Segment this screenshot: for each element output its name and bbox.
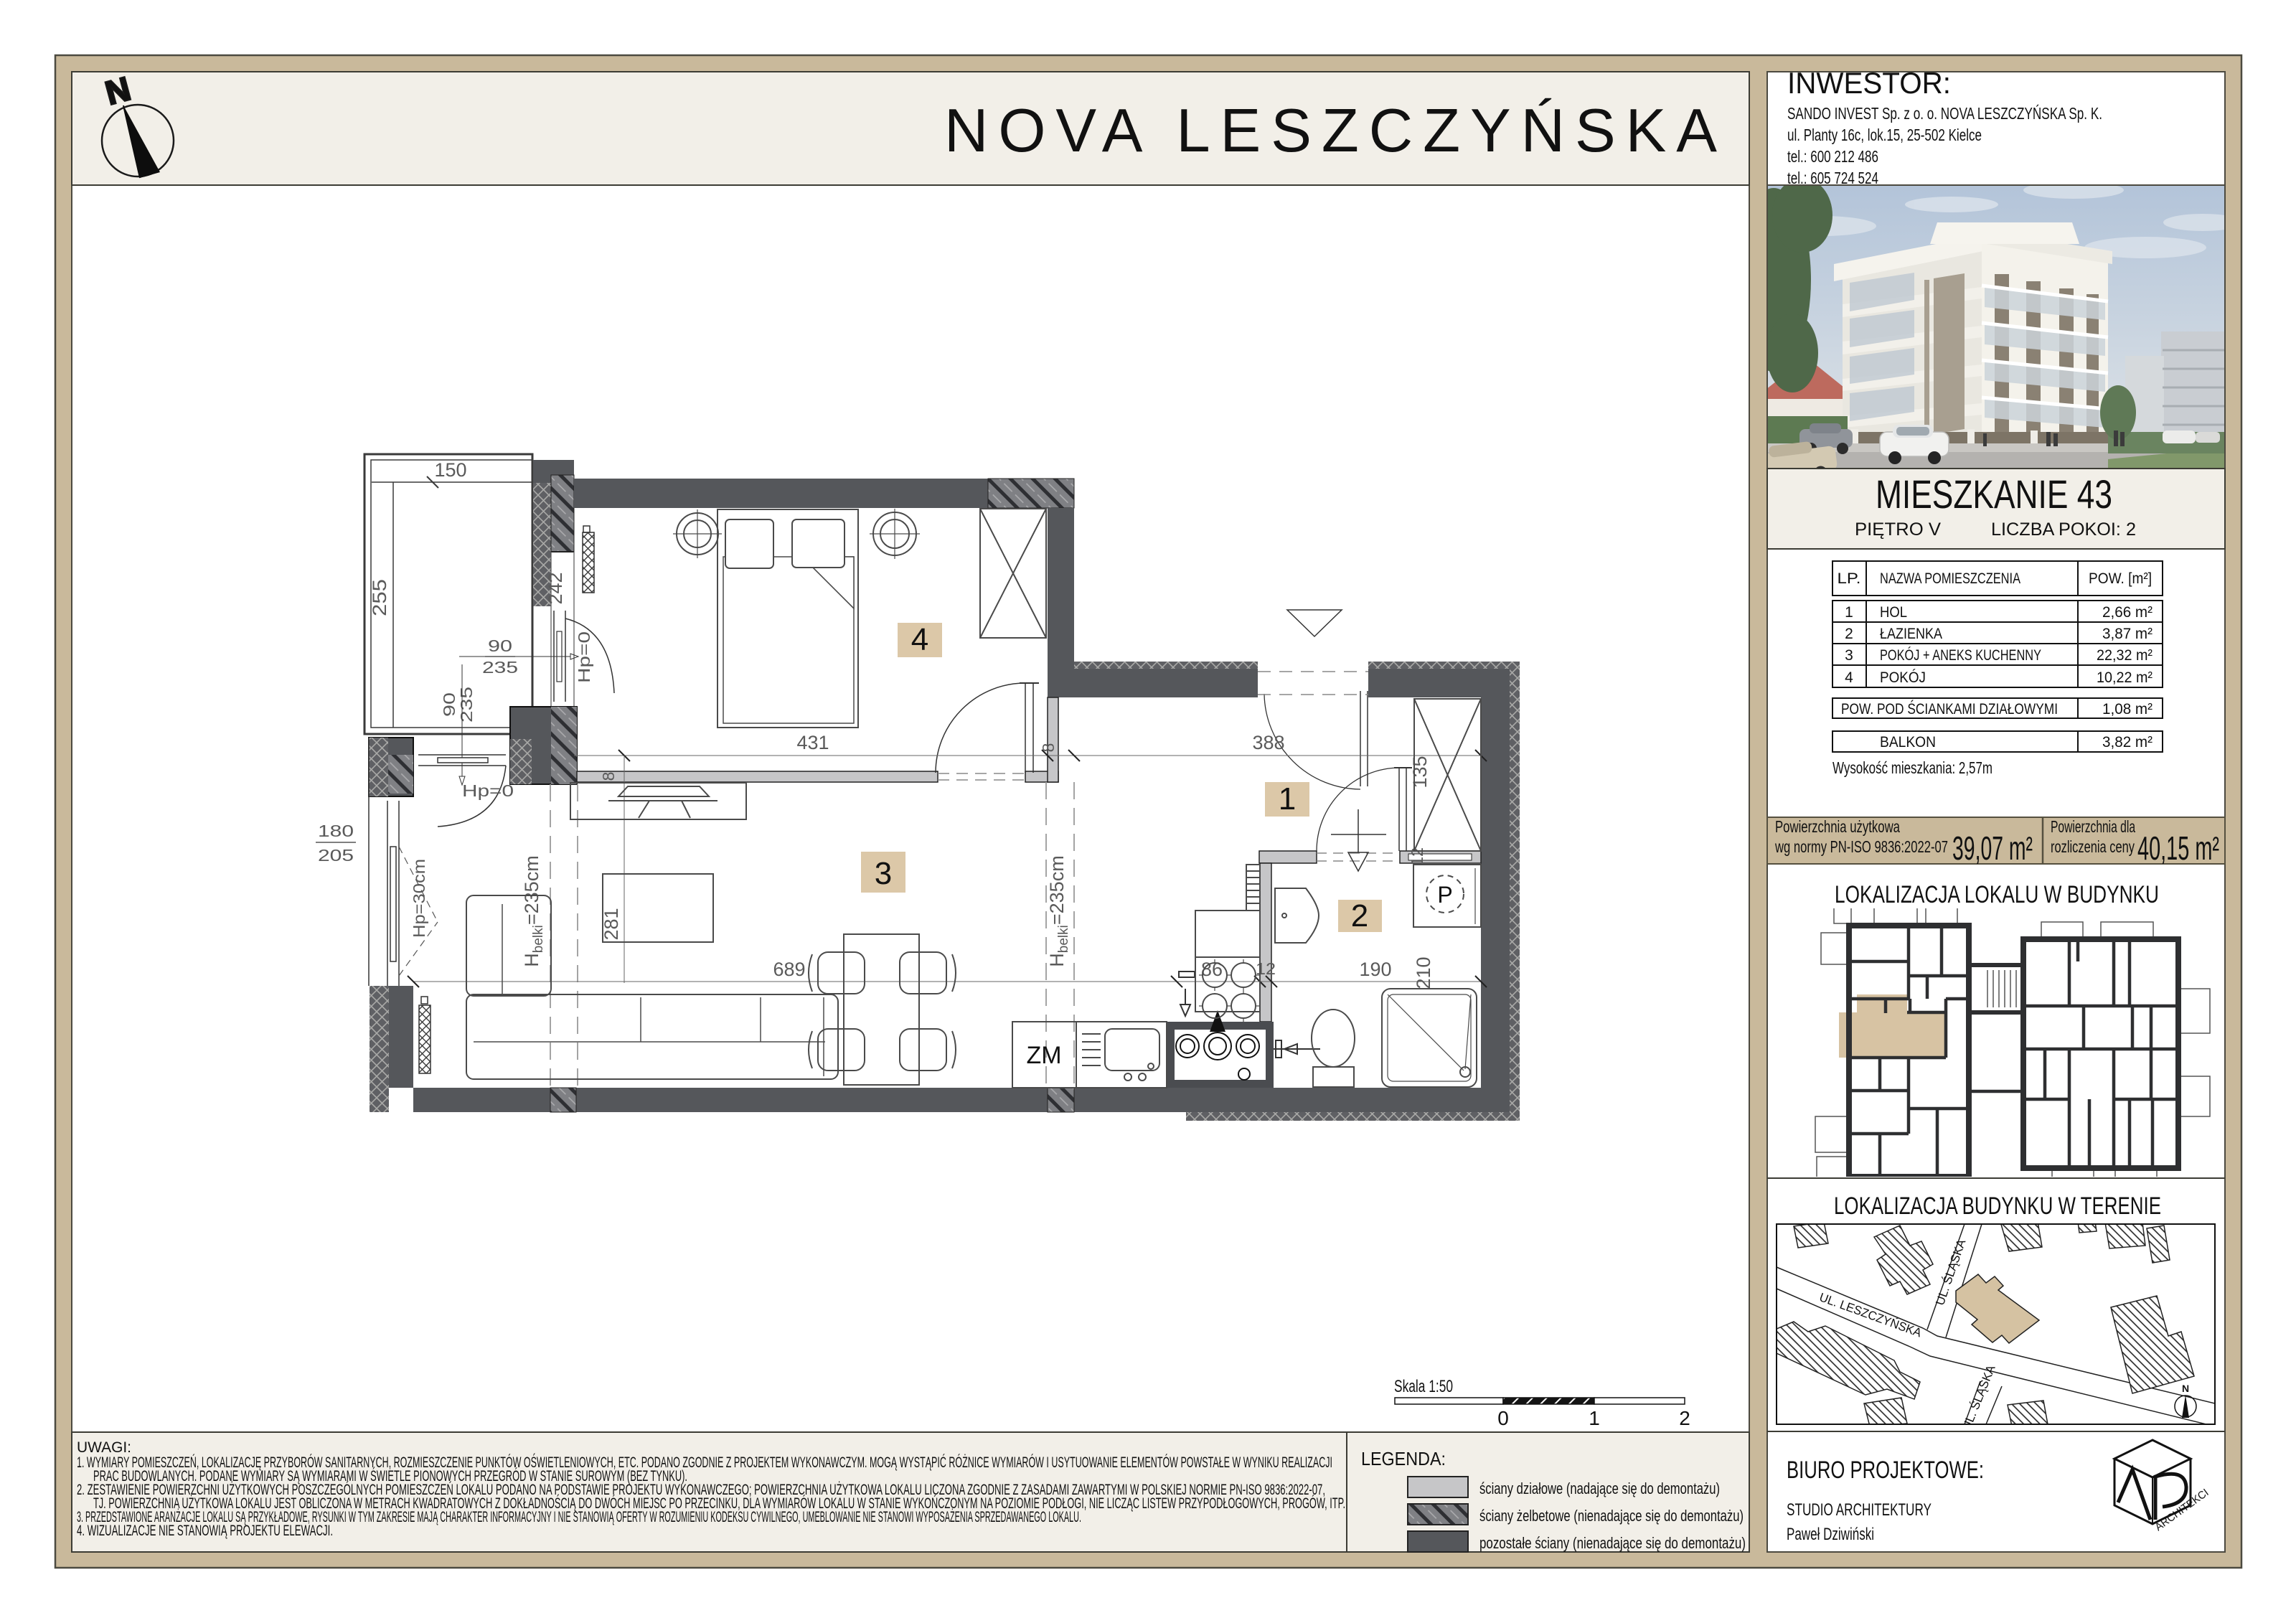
svg-text:1: 1 [1279,781,1296,817]
svg-text:150: 150 [434,459,466,481]
svg-text:90: 90 [440,692,458,717]
svg-text:LEGENDA:: LEGENDA: [1361,1448,1446,1469]
svg-text:1: 1 [1589,1407,1600,1429]
svg-text:NAZWA POMIESZCZENIA: NAZWA POMIESZCZENIA [1880,570,2020,587]
svg-text:210: 210 [1413,956,1434,989]
svg-text:POKÓJ + ANEKS KUCHENNY: POKÓJ + ANEKS KUCHENNY [1880,647,2041,664]
svg-text:STUDIO ARCHITEKTURY: STUDIO ARCHITEKTURY [1787,1500,1932,1520]
svg-text:190: 190 [1359,959,1391,980]
svg-text:pozostałe ściany (nienadające: pozostałe ściany (nienadające się do dem… [1479,1534,1746,1552]
svg-text:2,66 m²: 2,66 m² [2102,604,2152,621]
svg-text:Skala 1:50: Skala 1:50 [1394,1377,1453,1396]
svg-text:3,82 m²: 3,82 m² [2102,734,2152,751]
svg-text:1: 1 [1845,604,1853,621]
svg-text:MIESZKANIE 43: MIESZKANIE 43 [1876,471,2112,517]
svg-text:3: 3 [875,856,892,891]
svg-text:2: 2 [1679,1407,1690,1429]
svg-text:388: 388 [1252,732,1284,753]
svg-text:ul. Planty 16c, lok.15, 25-502: ul. Planty 16c, lok.15, 25-502 Kielce [1787,126,1982,144]
svg-text:wg normy PN-ISO 9836:2022-07: wg normy PN-ISO 9836:2022-07 [1774,837,1948,856]
svg-text:0: 0 [1497,1407,1509,1429]
svg-text:1,08 m²: 1,08 m² [2102,701,2152,718]
svg-text:205: 205 [318,846,354,865]
svg-text:3,87 m²: 3,87 m² [2102,626,2152,642]
svg-text:2: 2 [1351,898,1368,933]
svg-text:N: N [2182,1383,2189,1394]
svg-text:242: 242 [545,572,566,604]
svg-text:Powierzchnia dla: Powierzchnia dla [2051,817,2135,836]
svg-text:8: 8 [1039,743,1058,753]
svg-text:POW. [m²]: POW. [m²] [2089,570,2152,587]
svg-text:4: 4 [1845,669,1853,686]
svg-text:255: 255 [369,579,390,616]
svg-text:235: 235 [457,687,476,723]
svg-text:12: 12 [1408,847,1426,866]
svg-text:POKÓJ: POKÓJ [1880,669,1926,686]
svg-text:LOKALIZACJA LOKALU W BUDYNKU: LOKALIZACJA LOKALU W BUDYNKU [1835,881,2159,908]
svg-text:3: 3 [1845,647,1853,664]
svg-text:BIURO PROJEKTOWE:: BIURO PROJEKTOWE: [1787,1457,1984,1484]
svg-text:ściany żelbetowe (nienadające: ściany żelbetowe (nienadające się do dem… [1479,1507,1744,1525]
svg-text:Hp=0: Hp=0 [462,781,514,800]
svg-text:281: 281 [601,908,622,940]
svg-text:tel.: 600 212 486: tel.: 600 212 486 [1787,147,1878,166]
svg-text:ŁAZIENKA: ŁAZIENKA [1880,626,1942,642]
svg-text:135: 135 [1409,756,1431,788]
svg-text:431: 431 [796,732,829,753]
svg-text:2: 2 [1845,626,1853,642]
svg-text:ściany działowe (nadające się: ściany działowe (nadające się do demonta… [1479,1479,1720,1497]
svg-text:4: 4 [911,622,928,657]
svg-text:Wysokość mieszkania: 2,57m: Wysokość mieszkania: 2,57m [1832,758,1992,777]
svg-text:235: 235 [482,658,518,677]
svg-text:LICZBA POKOI: 2: LICZBA POKOI: 2 [1991,519,2136,540]
svg-text:Hp=0: Hp=0 [575,631,593,683]
svg-text:INWESTOR:: INWESTOR: [1787,66,1951,100]
svg-text:10,22 m²: 10,22 m² [2097,669,2152,686]
svg-text:UWAGI:: UWAGI: [77,1439,131,1456]
svg-text:P: P [1437,882,1452,908]
svg-text:90: 90 [488,636,512,655]
svg-text:689: 689 [773,959,805,980]
svg-text:22,32 m²: 22,32 m² [2097,647,2152,664]
svg-text:POW. POD ŚCIANKAMI DZIAŁOWYMI: POW. POD ŚCIANKAMI DZIAŁOWYMI [1841,700,2058,718]
svg-text:NOVA LESZCZYŃSKA: NOVA LESZCZYŃSKA [944,97,1717,165]
svg-text:Paweł Dziwiński: Paweł Dziwiński [1787,1525,1874,1544]
svg-text:180: 180 [318,822,354,840]
svg-text:SANDO INVEST Sp. z o. o. NOVA: SANDO INVEST Sp. z o. o. NOVA LESZCZYŃSK… [1787,104,2102,123]
svg-text:39,07 m²: 39,07 m² [1952,829,2033,867]
svg-text:HOL: HOL [1880,604,1907,621]
svg-text:LP.: LP. [1838,570,1861,587]
svg-text:40,15 m²: 40,15 m² [2137,829,2219,867]
svg-text:PIĘTRO V: PIĘTRO V [1855,519,1941,540]
svg-text:rozliczenia ceny: rozliczenia ceny [2051,837,2135,856]
svg-text:BALKON: BALKON [1880,734,1936,751]
svg-text:ZM: ZM [1026,1042,1061,1069]
svg-text:8: 8 [599,772,618,781]
svg-text:Powierzchnia użytkowa: Powierzchnia użytkowa [1775,817,1900,836]
svg-text:LOKALIZACJA BUDYNKU W TERENIE: LOKALIZACJA BUDYNKU W TERENIE [1834,1192,2161,1220]
svg-text:4. WIZUALIZACJE NIE STANOWIĄ P: 4. WIZUALIZACJE NIE STANOWIĄ PROJEKTU EL… [77,1523,333,1539]
svg-text:Hp=30cm: Hp=30cm [410,859,428,938]
